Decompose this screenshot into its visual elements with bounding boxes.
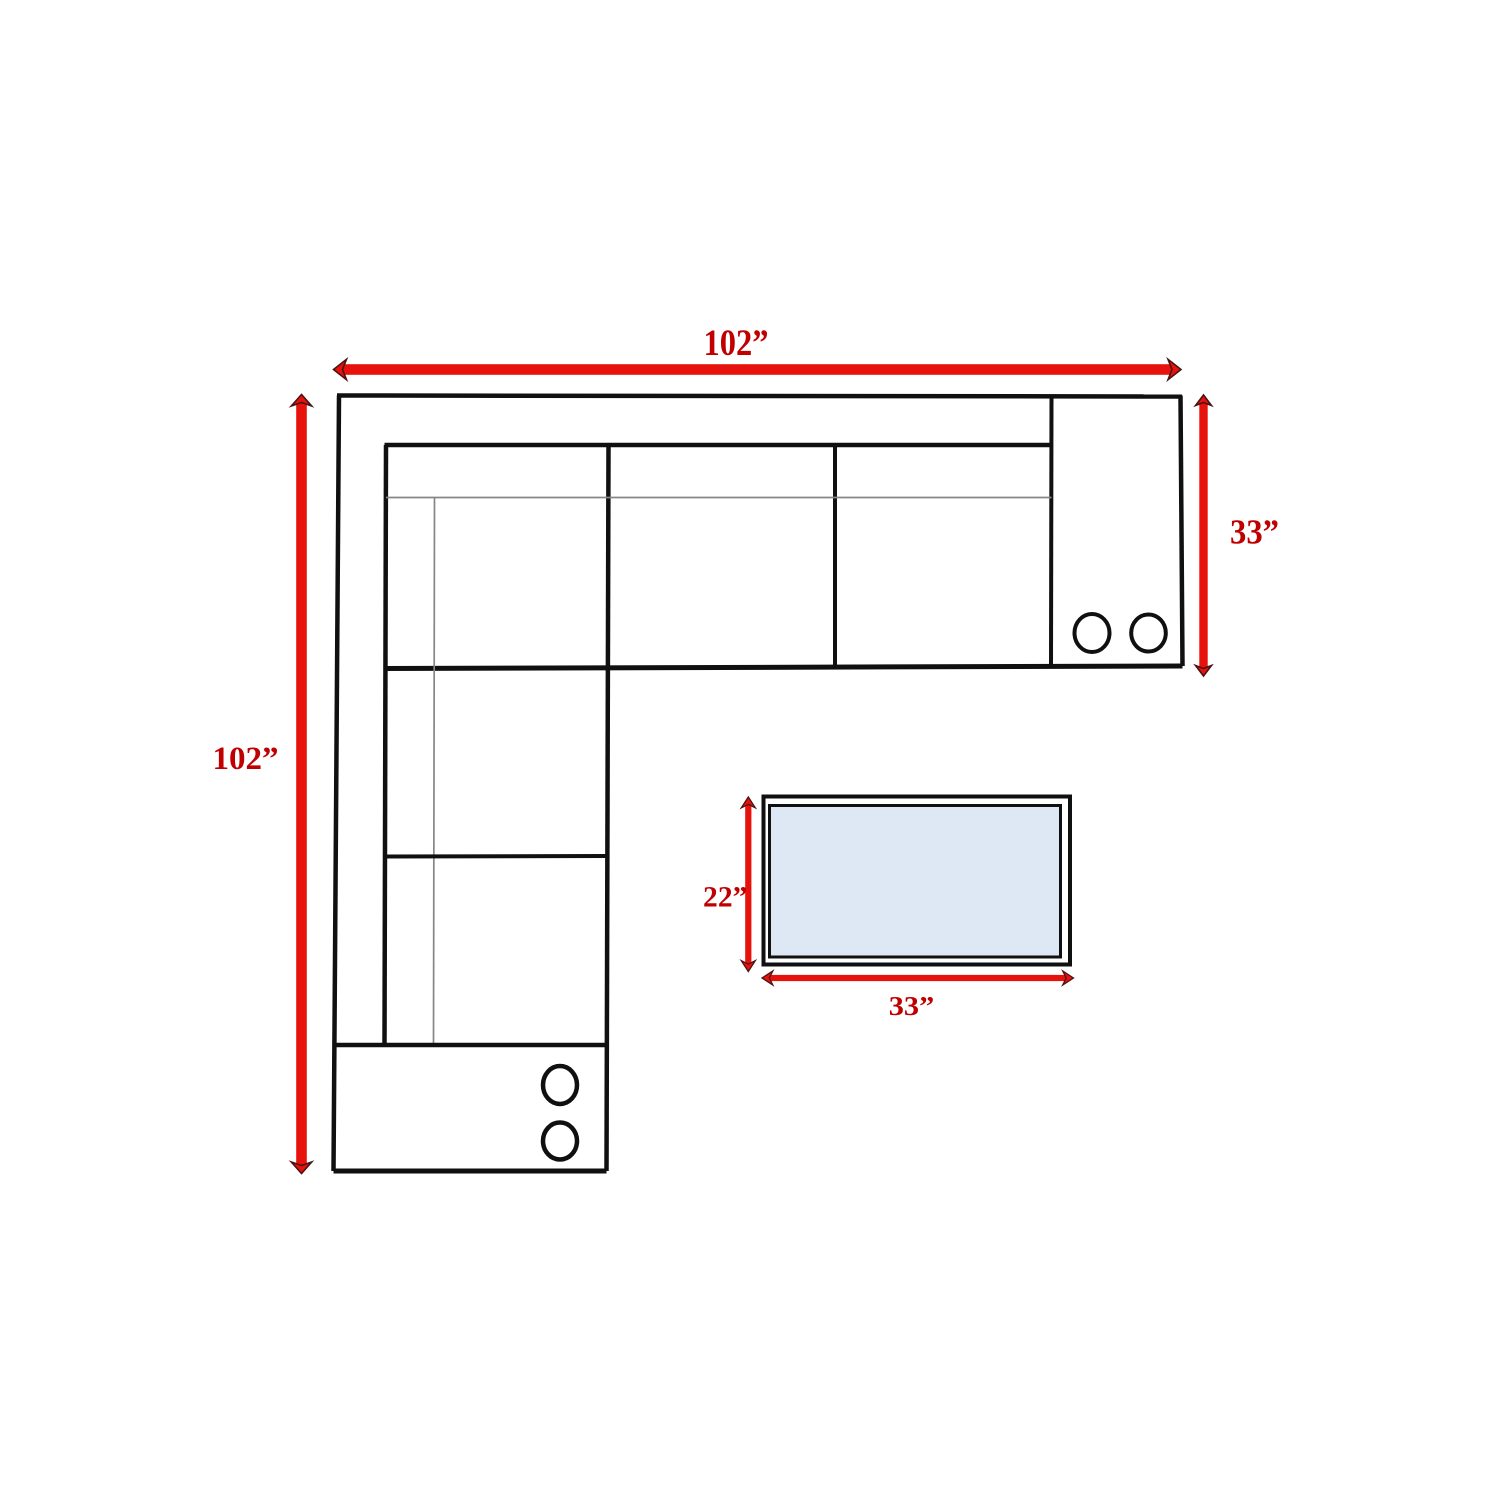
svg-text:102”: 102” (213, 741, 279, 777)
svg-text:102”: 102” (704, 322, 769, 363)
svg-text:33”: 33” (889, 990, 934, 1021)
svg-text:22”: 22” (703, 882, 747, 914)
svg-text:33”: 33” (1230, 513, 1279, 552)
